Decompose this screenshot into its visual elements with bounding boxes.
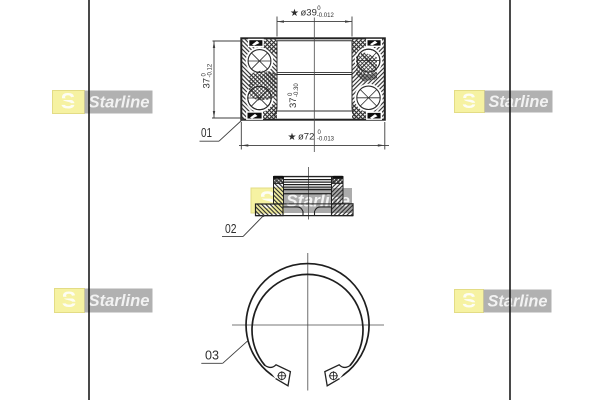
svg-text:01: 01 bbox=[201, 126, 212, 140]
svg-text:S: S bbox=[61, 89, 76, 114]
svg-text:37: 37 bbox=[202, 78, 213, 89]
svg-text:S: S bbox=[462, 90, 476, 113]
svg-text:02: 02 bbox=[225, 222, 237, 236]
svg-text:-0.12: -0.12 bbox=[208, 63, 214, 77]
svg-text:03: 03 bbox=[205, 349, 219, 363]
svg-text:-0.012: -0.012 bbox=[317, 13, 335, 19]
svg-text:S: S bbox=[62, 287, 77, 312]
svg-text:ø72: ø72 bbox=[298, 131, 314, 142]
svg-text:37: 37 bbox=[288, 97, 299, 108]
svg-text:Starline: Starline bbox=[89, 292, 150, 310]
svg-text:★: ★ bbox=[288, 132, 297, 143]
svg-text:Starline: Starline bbox=[89, 93, 150, 111]
svg-text:-0.013: -0.013 bbox=[317, 137, 335, 143]
svg-text:ø39: ø39 bbox=[301, 8, 317, 19]
svg-text:-0.30: -0.30 bbox=[294, 83, 300, 97]
svg-text:S: S bbox=[462, 290, 476, 313]
svg-text:Starline: Starline bbox=[489, 93, 549, 111]
svg-text:★: ★ bbox=[290, 8, 299, 19]
svg-text:Starline: Starline bbox=[488, 292, 548, 310]
